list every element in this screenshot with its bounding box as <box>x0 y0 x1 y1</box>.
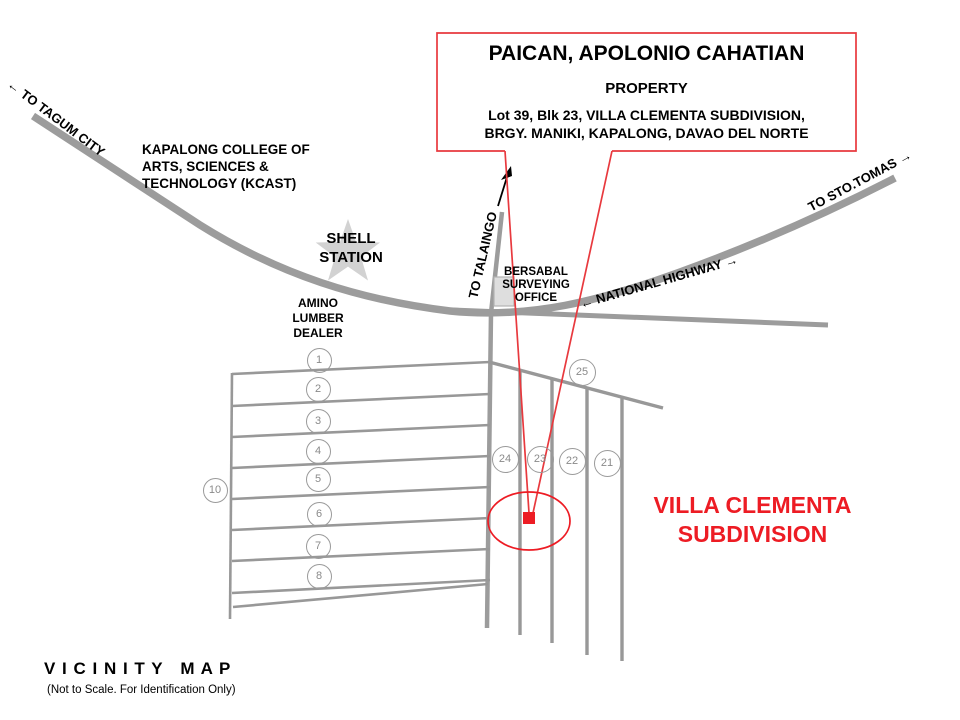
map-title: V I C I N I T Y M A P <box>44 659 231 679</box>
amino-line2: LUMBER <box>278 311 358 326</box>
subdivision-name-label: VILLA CLEMENTA SUBDIVISION <box>635 491 870 549</box>
branch-road <box>452 310 828 325</box>
kcast-label: KAPALONG COLLEGE OF ARTS, SCIENCES & TEC… <box>142 141 310 192</box>
shell-station-label: SHELL STATION <box>300 229 402 267</box>
block-circle-4: 4 <box>306 439 331 464</box>
bersabal-line1: BERSABAL <box>495 266 577 279</box>
amino-lumber-label: AMINO LUMBER DEALER <box>278 296 358 341</box>
subdivision-name-line1: VILLA CLEMENTA <box>635 491 870 520</box>
kcast-line3: TECHNOLOGY (KCAST) <box>142 175 310 192</box>
block-circle-25: 25 <box>569 359 596 386</box>
block-circle-24: 24 <box>492 446 519 473</box>
block-circle-10: 10 <box>203 478 228 503</box>
bersabal-line2: SURVEYING <box>495 279 577 292</box>
shell-line1: SHELL <box>300 229 402 248</box>
talaingo-direction-arrow-icon <box>498 166 512 206</box>
block-circle-3: 3 <box>306 409 331 434</box>
shell-line2: STATION <box>300 248 402 267</box>
kcast-line1: KAPALONG COLLEGE OF <box>142 141 310 158</box>
block-circle-1: 1 <box>307 348 332 373</box>
amino-line3: DEALER <box>278 326 358 341</box>
bersabal-office-label: BERSABAL SURVEYING OFFICE <box>495 266 577 305</box>
property-address-line1: Lot 39, Blk 23, VILLA CLEMENTA SUBDIVISI… <box>437 107 856 123</box>
block-circle-8: 8 <box>307 564 332 589</box>
kcast-line2: ARTS, SCIENCES & <box>142 158 310 175</box>
property-lot-marker <box>523 512 535 524</box>
vicinity-map-canvas: PAICAN, APOLONIO CAHATIAN PROPERTY Lot 3… <box>0 0 960 720</box>
block-circle-5: 5 <box>306 467 331 492</box>
block-circle-6: 6 <box>307 502 332 527</box>
property-subtitle: PROPERTY <box>437 80 856 97</box>
map-subtitle: (Not to Scale. For Identification Only) <box>47 684 236 697</box>
property-owner-title: PAICAN, APOLONIO CAHATIAN <box>437 42 856 66</box>
amino-line1: AMINO <box>278 296 358 311</box>
block-circle-7: 7 <box>306 534 331 559</box>
block-circle-21: 21 <box>594 450 621 477</box>
bersabal-line3: OFFICE <box>495 292 577 305</box>
subdivision-name-line2: SUBDIVISION <box>635 520 870 549</box>
block-circle-22: 22 <box>559 448 586 475</box>
left-block-grid <box>230 362 490 619</box>
block-circle-23: 23 <box>527 446 554 473</box>
block-circle-2: 2 <box>306 377 331 402</box>
property-address-line2: BRGY. MANIKI, KAPALONG, DAVAO DEL NORTE <box>437 125 856 141</box>
